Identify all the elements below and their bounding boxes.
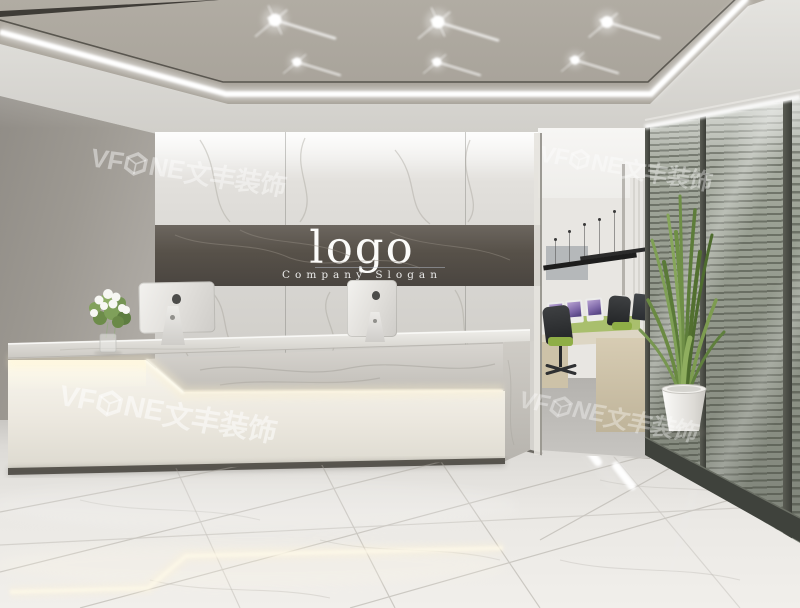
- apple-logo-icon: [172, 294, 181, 304]
- wire-anchor-dot: [554, 238, 557, 241]
- monitor-screen: [587, 299, 601, 315]
- wire-anchor-dot: [613, 210, 616, 213]
- monitor: [585, 297, 604, 321]
- dark-marble-logo-band: logo Company Slogan: [155, 225, 541, 286]
- apple-logo-icon: [372, 291, 380, 300]
- watermark-suffix: NE: [146, 151, 187, 186]
- reception-imac-left: [139, 282, 215, 346]
- pendant-wire: [569, 232, 570, 264]
- imac-stand-hole: [373, 319, 377, 323]
- wire-anchor-dot: [568, 230, 571, 233]
- pendant-wire: [555, 240, 556, 266]
- wall-sign: logo Company Slogan: [169, 225, 555, 281]
- watermark-suffix: NE: [120, 390, 166, 428]
- glass-frame-post: [783, 95, 792, 543]
- watermark-prefix: VF: [88, 143, 126, 178]
- wire-anchor-dot: [583, 223, 586, 226]
- office-chair-post: [559, 346, 562, 367]
- office-chair-seat: [612, 322, 632, 330]
- watermark-prefix: VF: [56, 380, 99, 418]
- reception-imac-right: [347, 280, 397, 342]
- company-logo-text: logo: [169, 225, 555, 271]
- office-chair-seat: [548, 337, 573, 346]
- wire-anchor-dot: [598, 218, 601, 221]
- pendant-wire: [614, 212, 615, 256]
- logo-underline: [315, 267, 445, 268]
- watermark-suffix: NE: [589, 148, 626, 179]
- office-reception-render: logo Company Slogan: [0, 0, 800, 608]
- imac-stand-hole: [170, 315, 175, 320]
